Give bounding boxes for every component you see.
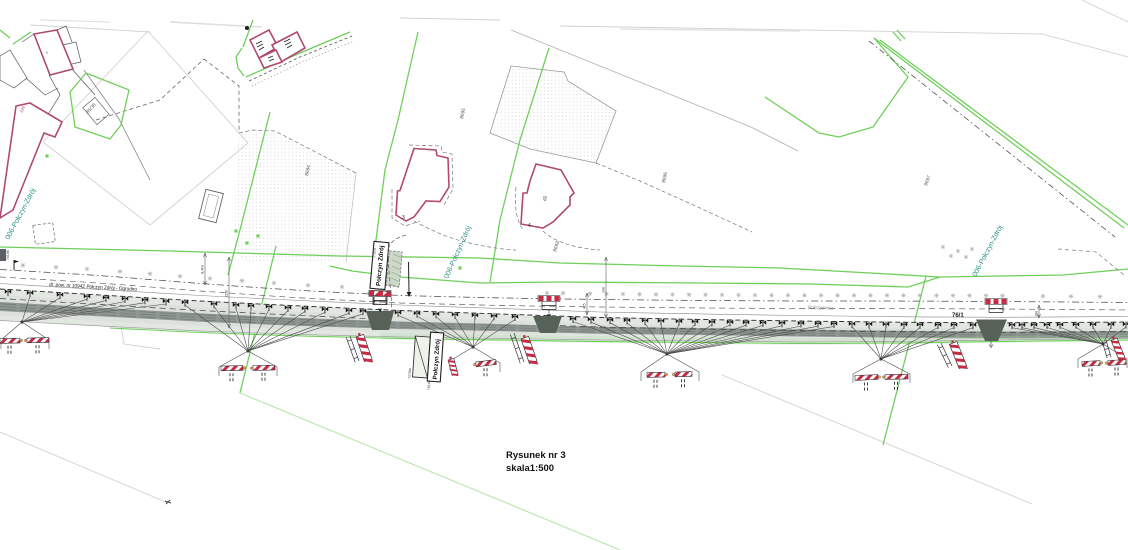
svg-text:T0794b: T0794b	[407, 368, 412, 379]
svg-text:3m: 3m	[1034, 310, 1039, 316]
svg-text:4: 4	[528, 223, 531, 229]
svg-text:4,5: 4,5	[582, 303, 587, 309]
svg-text:3: 3	[402, 215, 405, 221]
svg-text:Pokrzywnica: Pokrzywnica	[808, 305, 833, 312]
svg-text:21m: 21m	[224, 289, 229, 297]
svg-text:749,86: 749,86	[427, 380, 432, 390]
svg-text:Rysunek nr 3: Rysunek nr 3	[506, 450, 566, 461]
svg-text:749,86: 749,86	[6, 250, 10, 260]
svg-text:76/1: 76/1	[952, 313, 964, 319]
svg-text:9,4m: 9,4m	[200, 264, 205, 274]
svg-text:skala1:500: skala1:500	[506, 463, 554, 474]
svg-text:9m: 9m	[601, 286, 606, 292]
